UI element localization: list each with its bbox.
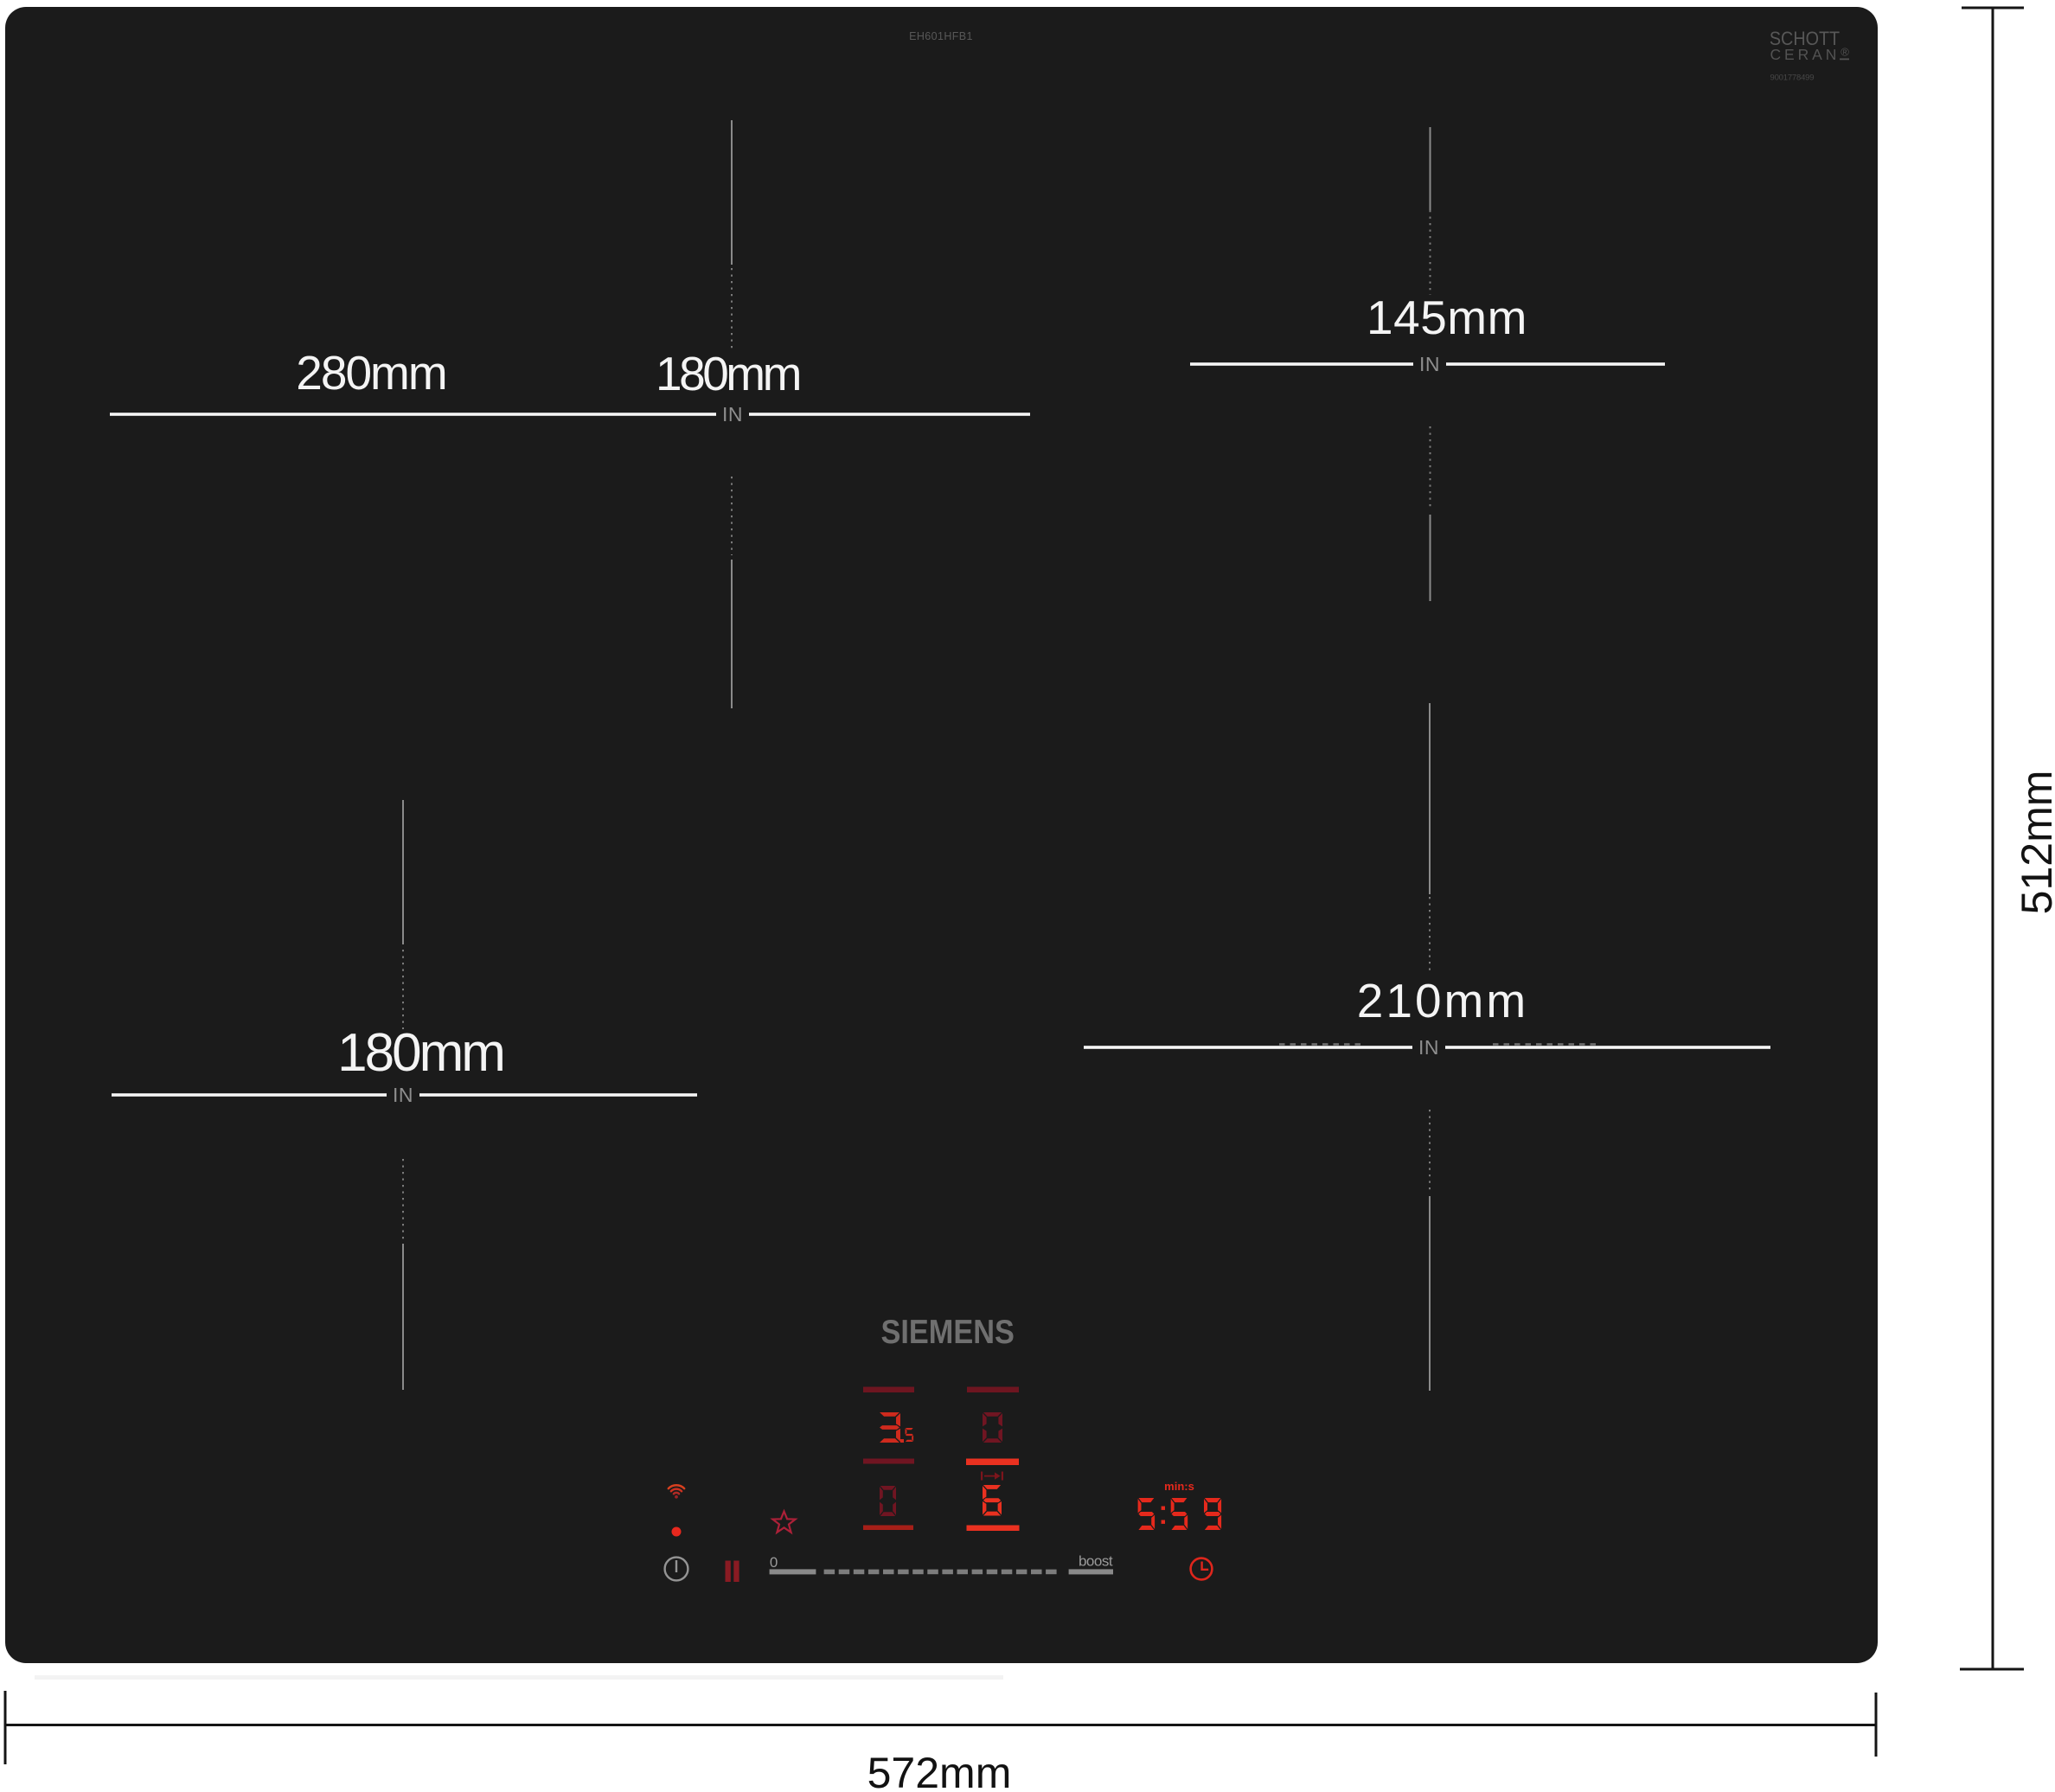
svg-text:210mm: 210mm [1357,974,1528,1027]
svg-text:0: 0 [770,1554,778,1571]
svg-text:180mm: 180mm [337,1023,503,1083]
svg-text:boost: boost [1079,1553,1113,1570]
svg-text:145mm: 145mm [1367,291,1527,344]
svg-text:IN: IN [722,403,743,426]
svg-text:IN: IN [1419,353,1440,375]
svg-text:min:s: min:s [1164,1480,1194,1493]
svg-text:280mm: 280mm [296,346,445,400]
svg-text:IN: IN [393,1084,413,1106]
svg-text:SIEMENS: SIEMENS [880,1313,1014,1351]
svg-text:512mm: 512mm [2013,771,2055,915]
svg-text:®: ® [1841,46,1849,59]
svg-text:IN: IN [1418,1036,1439,1059]
svg-text:180mm: 180mm [656,347,800,400]
svg-text:572mm: 572mm [867,1749,1012,1792]
svg-text:9001778499: 9001778499 [1770,74,1815,83]
svg-text:EH601HFB1: EH601HFB1 [909,30,973,42]
svg-text:CERAN: CERAN [1770,46,1841,63]
